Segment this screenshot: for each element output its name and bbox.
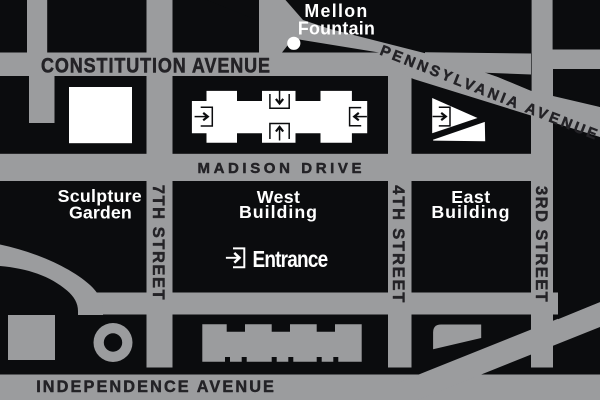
svg-text:Building: Building — [239, 202, 318, 222]
svg-text:3RD STREET: 3RD STREET — [532, 186, 550, 303]
svg-text:Garden: Garden — [69, 203, 132, 223]
svg-text:Entrance: Entrance — [253, 247, 328, 272]
svg-text:Building: Building — [431, 202, 510, 222]
svg-text:4TH STREET: 4TH STREET — [389, 185, 407, 304]
svg-text:Fountain: Fountain — [298, 17, 375, 39]
svg-text:INDEPENDENCE AVENUE: INDEPENDENCE AVENUE — [36, 378, 276, 396]
svg-text:CONSTITUTION AVENUE: CONSTITUTION AVENUE — [41, 54, 271, 78]
svg-text:7TH STREET: 7TH STREET — [149, 185, 167, 301]
svg-text:MADISON DRIVE: MADISON DRIVE — [197, 160, 365, 177]
